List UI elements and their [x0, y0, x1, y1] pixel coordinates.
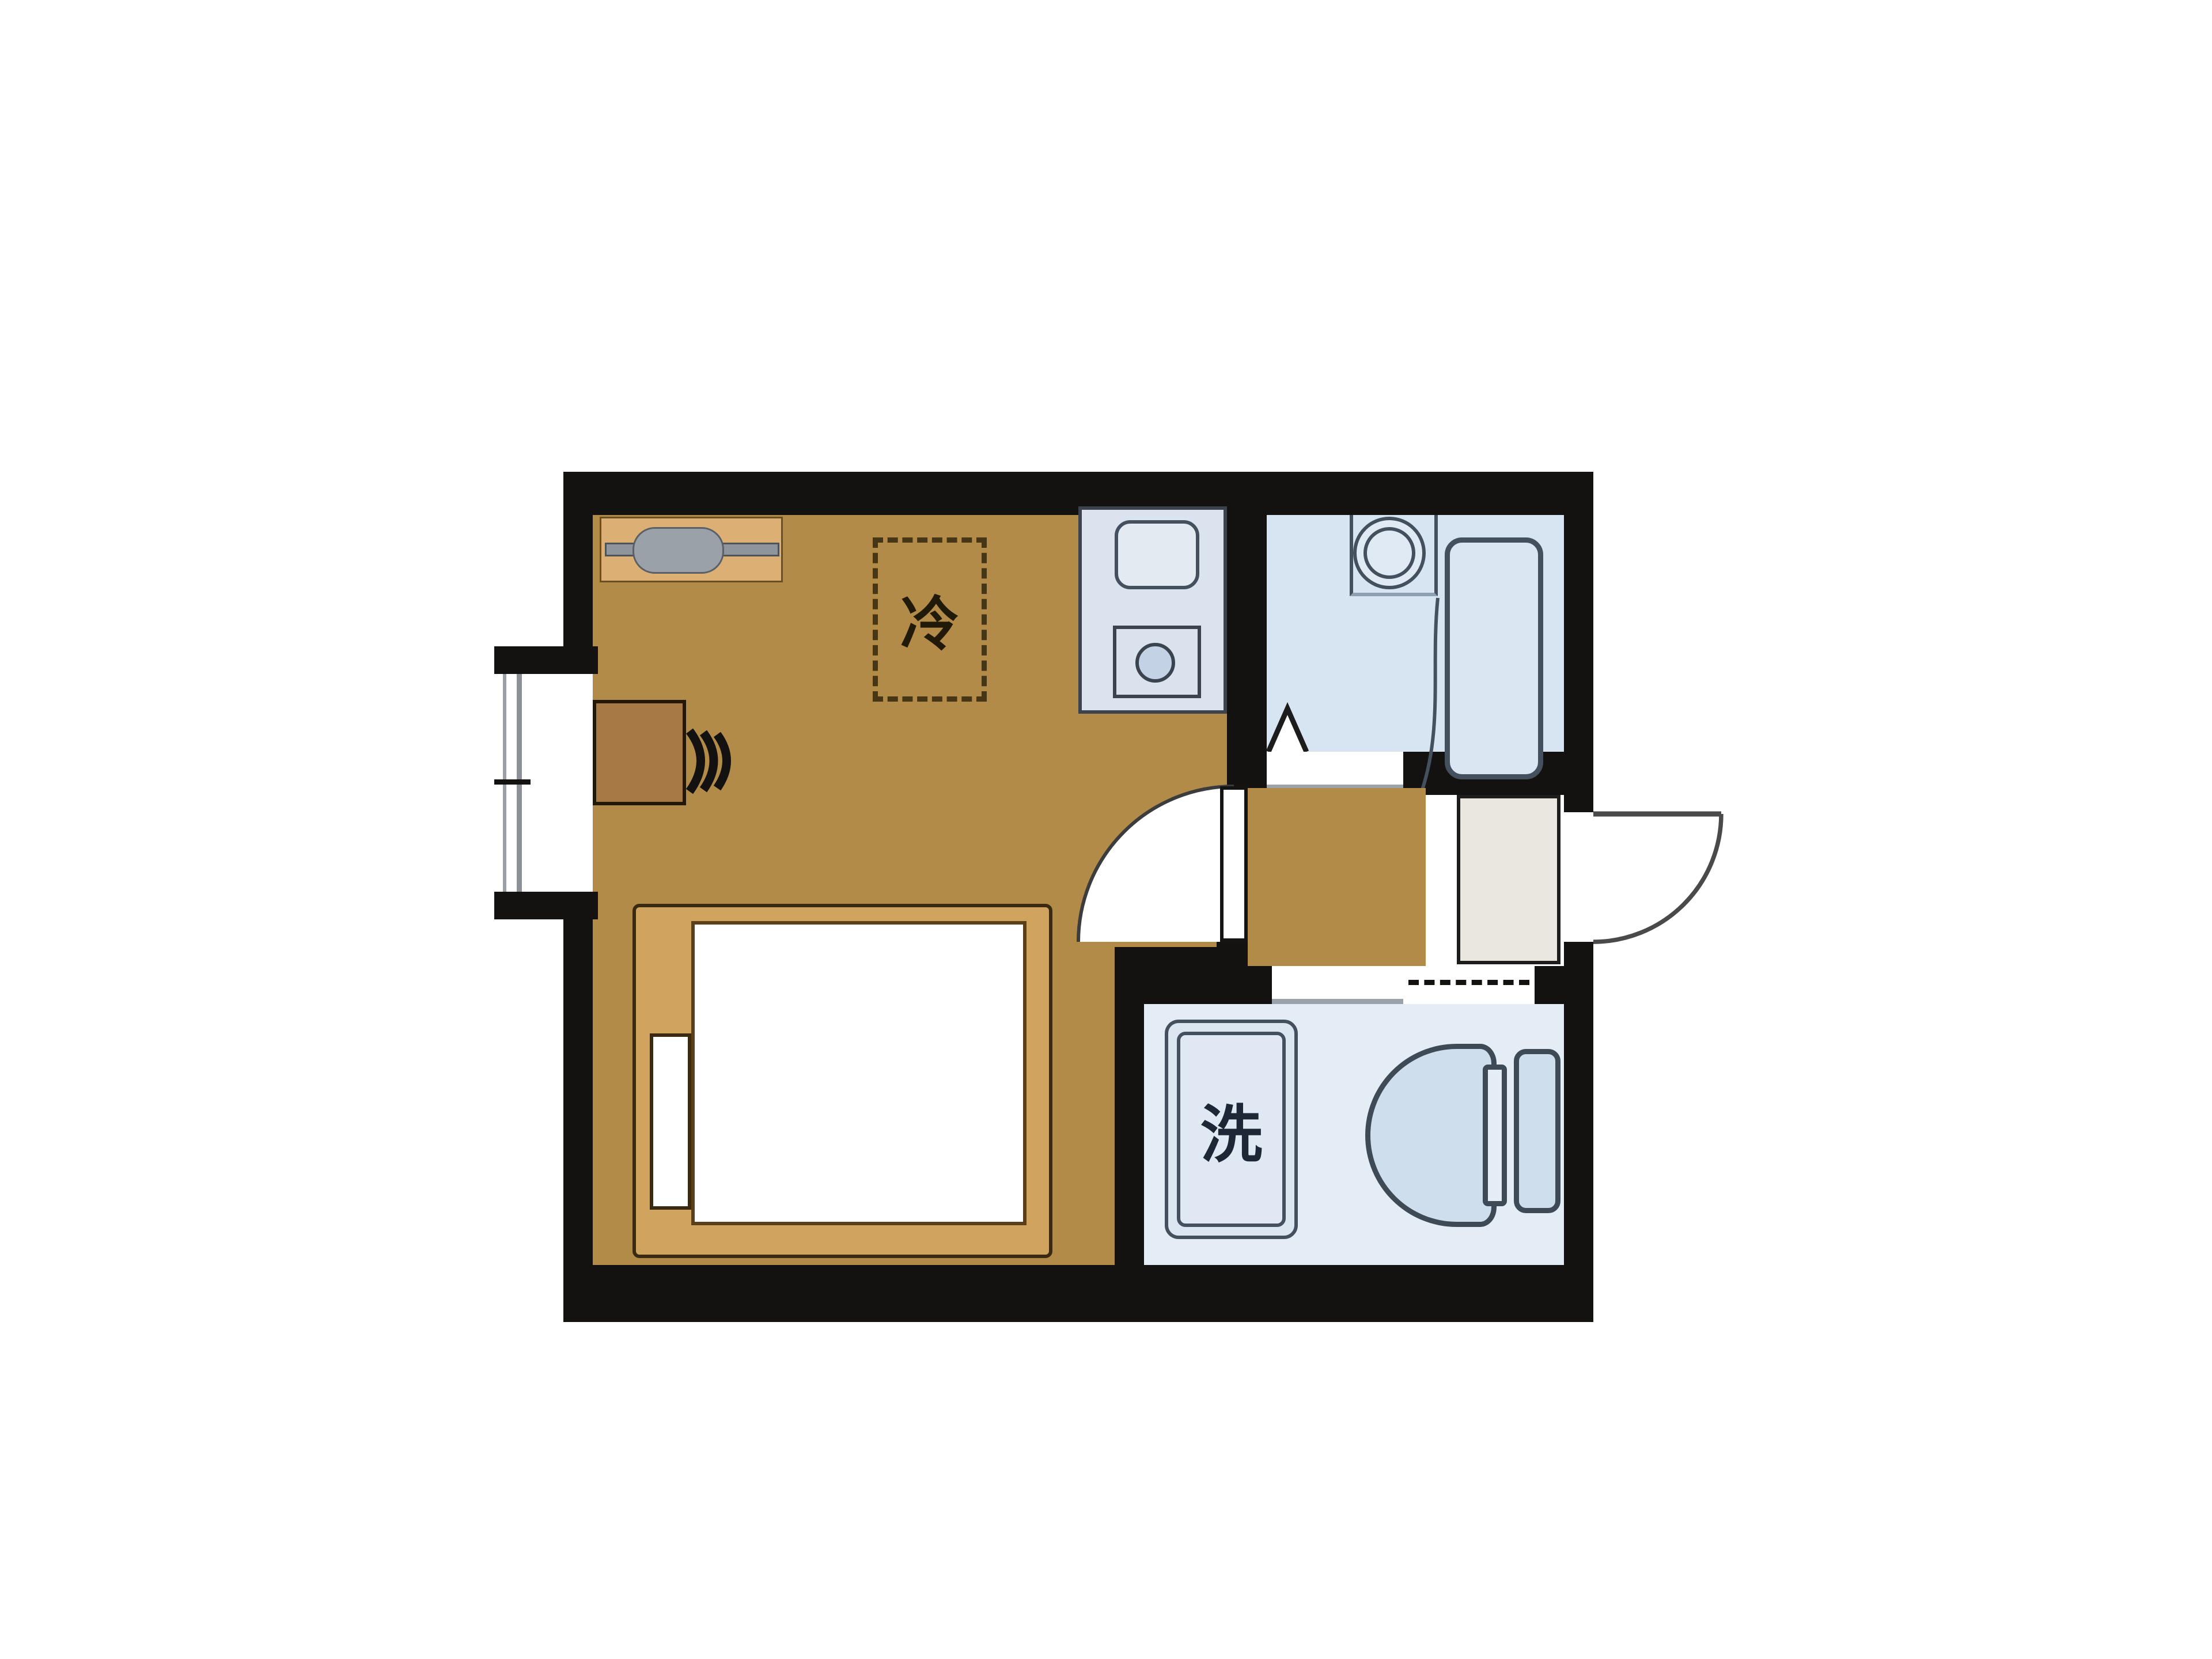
washing-machine-label: 洗 [1200, 1085, 1262, 1175]
hanger-slider [632, 527, 724, 574]
refrigerator-space: 冷 [873, 537, 987, 702]
shoe-cabinet [1457, 795, 1560, 964]
floor-plan: 冷 洗 [0, 0, 2212, 1659]
stove-burner-icon [1135, 643, 1175, 683]
desk [593, 700, 686, 805]
bathroom-threshold [1267, 752, 1403, 788]
toilet-tank [1514, 1049, 1560, 1213]
bathtub [1445, 537, 1543, 779]
sliding-door-dashes [1408, 980, 1529, 985]
refrigerator-label: 冷 [900, 577, 959, 662]
washbasin-inner [1363, 527, 1415, 579]
washroom-left-wall [1115, 1004, 1144, 1265]
washroom-top-wall-mid [1248, 966, 1272, 1004]
window-ledge-bottom [494, 892, 598, 919]
entrance-opening [1564, 812, 1593, 942]
washing-machine-space: 洗 [1177, 1032, 1286, 1227]
partition-wall-vertical [1227, 515, 1267, 786]
hallway-floor [1248, 788, 1426, 966]
washroom-sliding-panel [1403, 966, 1535, 1004]
window-ledge-top [494, 646, 598, 674]
washroom-top-wall-left [1115, 947, 1248, 1004]
mattress [691, 921, 1027, 1225]
pillow [650, 1033, 691, 1210]
kitchen-sink [1115, 520, 1199, 589]
washroom-top-wall-right [1535, 966, 1564, 1004]
window-meeting-rail [494, 779, 531, 784]
toilet-seat-hinge [1483, 1065, 1507, 1206]
interior-door-leaf [1220, 786, 1248, 942]
washroom-door-opening [1272, 966, 1403, 1004]
